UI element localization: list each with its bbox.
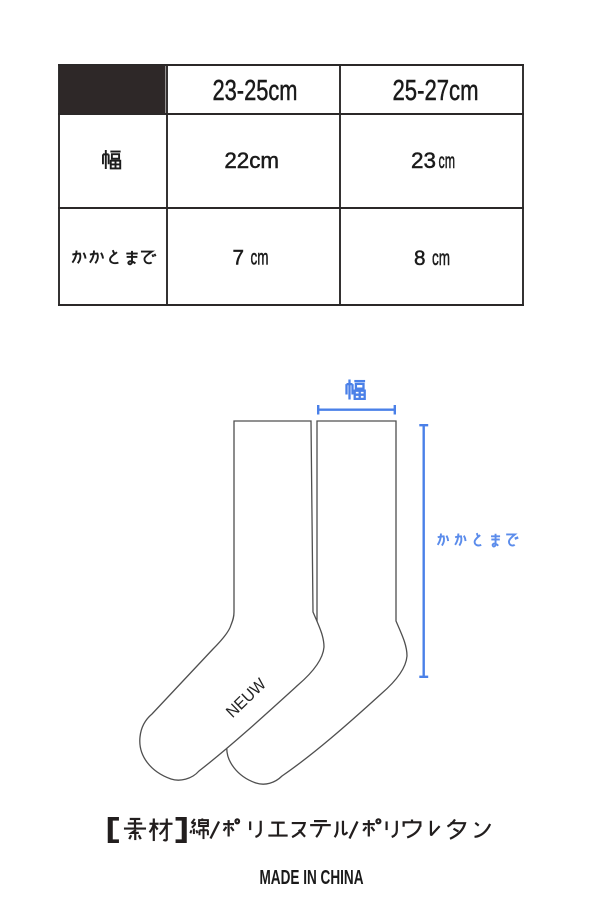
svg-text:23-25cm: 23-25cm xyxy=(213,75,298,107)
svg-text:22cm: 22cm xyxy=(224,148,279,173)
svg-text:7: 7 xyxy=(233,246,245,270)
svg-text:cm: cm xyxy=(251,247,269,270)
svg-text:cm: cm xyxy=(432,247,450,270)
svg-text:23: 23 xyxy=(411,148,436,173)
svg-text:cm: cm xyxy=(439,150,456,173)
svg-text:25-27cm: 25-27cm xyxy=(393,75,479,107)
svg-text:8: 8 xyxy=(414,246,426,270)
svg-text:MADE IN CHINA: MADE IN CHINA xyxy=(260,867,364,889)
